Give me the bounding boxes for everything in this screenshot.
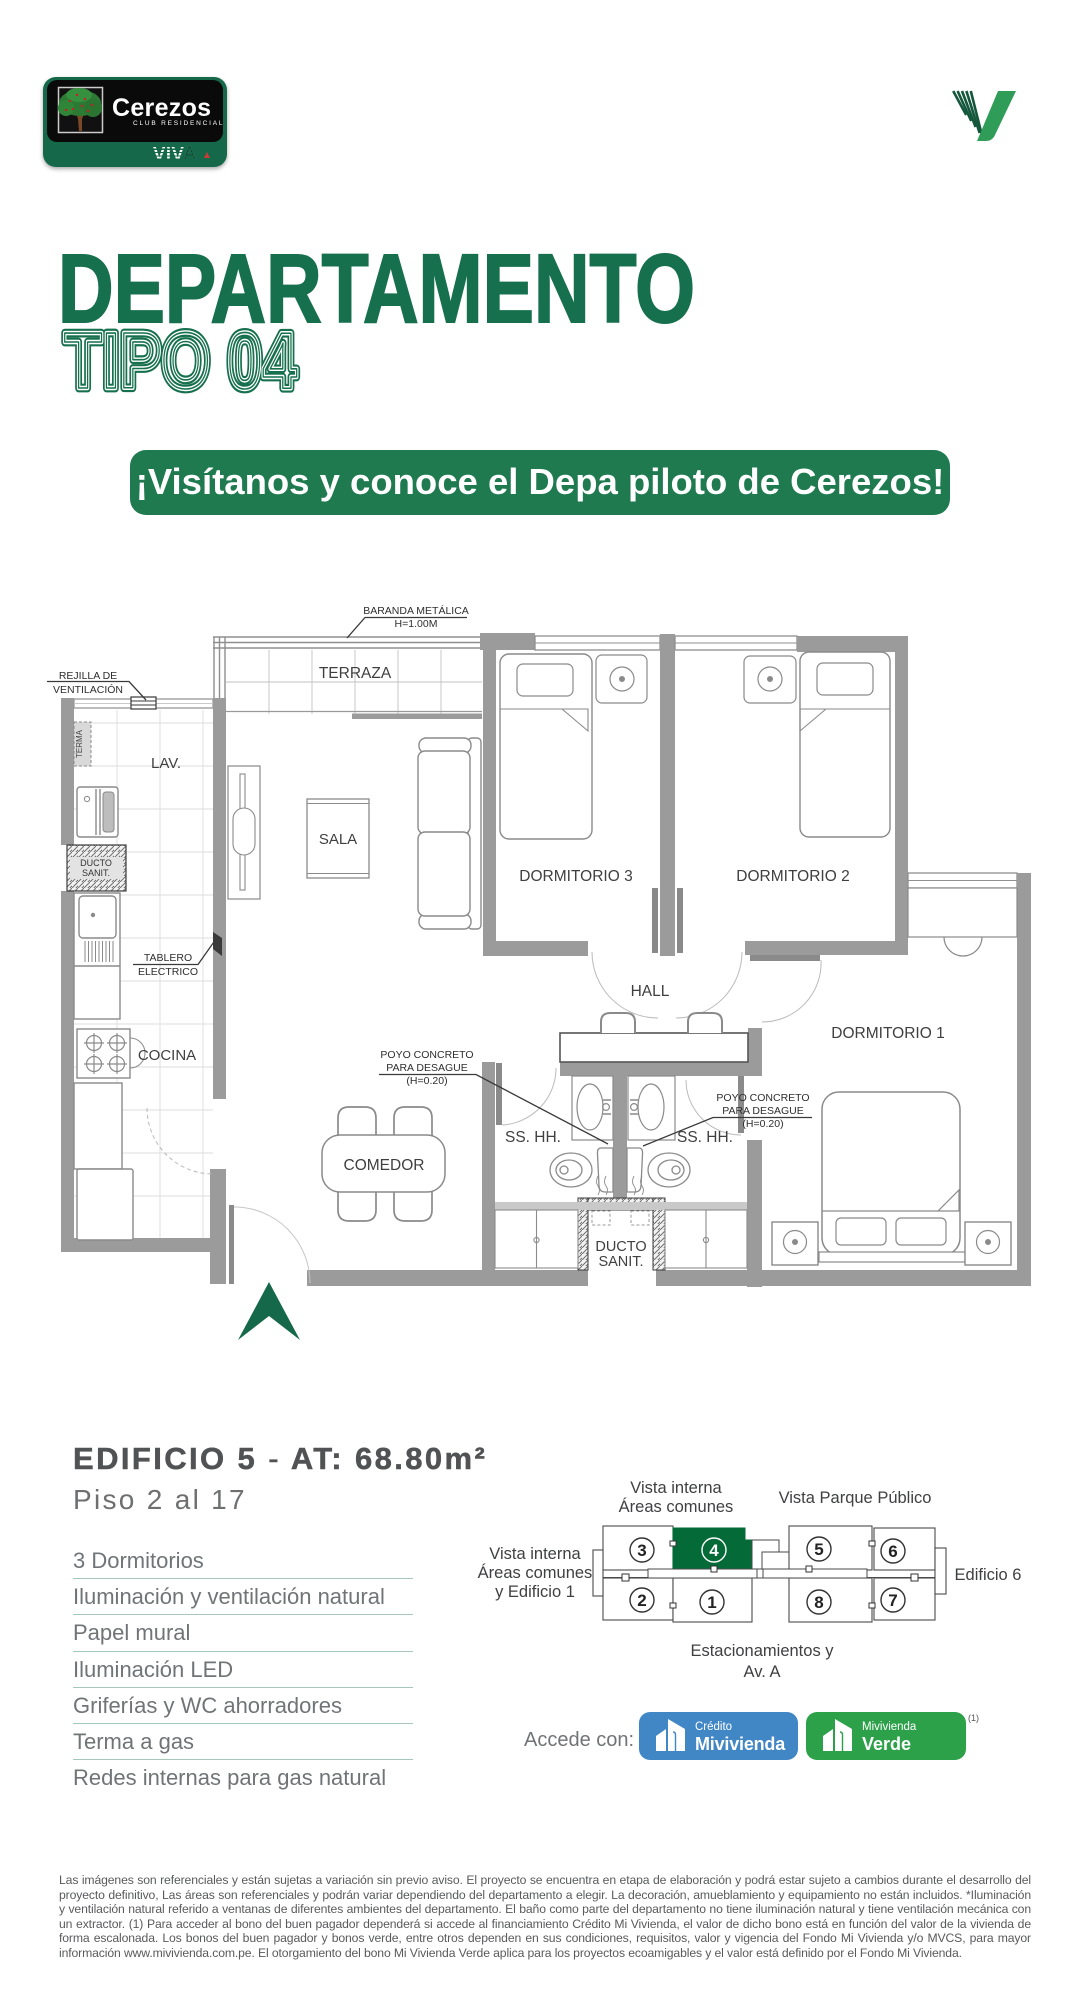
svg-text:DORMITORIO 2: DORMITORIO 2 — [736, 868, 849, 885]
svg-text:PARA DESAGUE: PARA DESAGUE — [386, 1062, 468, 1074]
svg-text:y Edificio 1: y Edificio 1 — [495, 1583, 575, 1601]
svg-text:DORMITORIO 3: DORMITORIO 3 — [519, 868, 632, 885]
svg-text:TABLERO: TABLERO — [144, 952, 192, 964]
svg-text:2: 2 — [637, 1591, 646, 1610]
svg-text:Vista Parque Público: Vista Parque Público — [779, 1489, 932, 1507]
svg-text:LAV.: LAV. — [151, 755, 181, 772]
svg-text:DUCTO: DUCTO — [80, 858, 112, 868]
svg-text:PARA DESAGUE: PARA DESAGUE — [722, 1105, 804, 1117]
svg-text:SS. HH.: SS. HH. — [677, 1129, 733, 1146]
svg-text:VENTILACIÓN: VENTILACIÓN — [53, 683, 123, 696]
svg-text:H=1.00M: H=1.00M — [395, 618, 438, 630]
svg-text:ELECTRICO: ELECTRICO — [138, 966, 198, 978]
svg-text:TERMA: TERMA — [75, 729, 84, 758]
svg-text:SANIT.: SANIT. — [82, 868, 110, 878]
svg-text:Áreas comunes: Áreas comunes — [478, 1563, 593, 1582]
svg-text:5: 5 — [814, 1540, 823, 1559]
svg-text:BARANDA METÁLICA: BARANDA METÁLICA — [363, 604, 469, 617]
svg-text:HALL: HALL — [631, 983, 670, 1000]
svg-text:SS. HH.: SS. HH. — [505, 1129, 561, 1146]
svg-text:(H=0.20): (H=0.20) — [742, 1118, 783, 1130]
svg-text:Áreas comunes: Áreas comunes — [619, 1497, 734, 1516]
svg-text:POYO CONCRETO: POYO CONCRETO — [716, 1092, 809, 1104]
svg-text:Edificio 6: Edificio 6 — [955, 1566, 1022, 1584]
svg-text:REJILLA DE: REJILLA DE — [59, 670, 117, 682]
svg-text:1: 1 — [707, 1593, 716, 1612]
svg-text:Vista interna: Vista interna — [489, 1545, 581, 1563]
svg-text:(H=0.20): (H=0.20) — [406, 1075, 447, 1087]
svg-text:3: 3 — [637, 1541, 646, 1560]
svg-text:TERRAZA: TERRAZA — [319, 665, 392, 682]
svg-text:POYO CONCRETO: POYO CONCRETO — [380, 1049, 473, 1061]
svg-text:COMEDOR: COMEDOR — [344, 1157, 425, 1174]
svg-text:6: 6 — [888, 1542, 897, 1561]
svg-text:8: 8 — [814, 1593, 823, 1612]
svg-text:Vista interna: Vista interna — [630, 1479, 722, 1497]
svg-text:DORMITORIO 1: DORMITORIO 1 — [831, 1025, 944, 1042]
svg-text:COCINA: COCINA — [138, 1047, 196, 1064]
svg-text:4: 4 — [709, 1541, 719, 1560]
svg-text:SALA: SALA — [319, 831, 357, 848]
svg-text:DUCTO: DUCTO — [595, 1239, 646, 1255]
svg-text:TIPO 04: TIPO 04 — [64, 316, 297, 405]
svg-text:SANIT.: SANIT. — [598, 1254, 643, 1270]
svg-text:Estacionamientos y: Estacionamientos y — [690, 1642, 834, 1660]
svg-text:Av. A: Av. A — [744, 1663, 781, 1681]
svg-text:7: 7 — [888, 1591, 897, 1610]
